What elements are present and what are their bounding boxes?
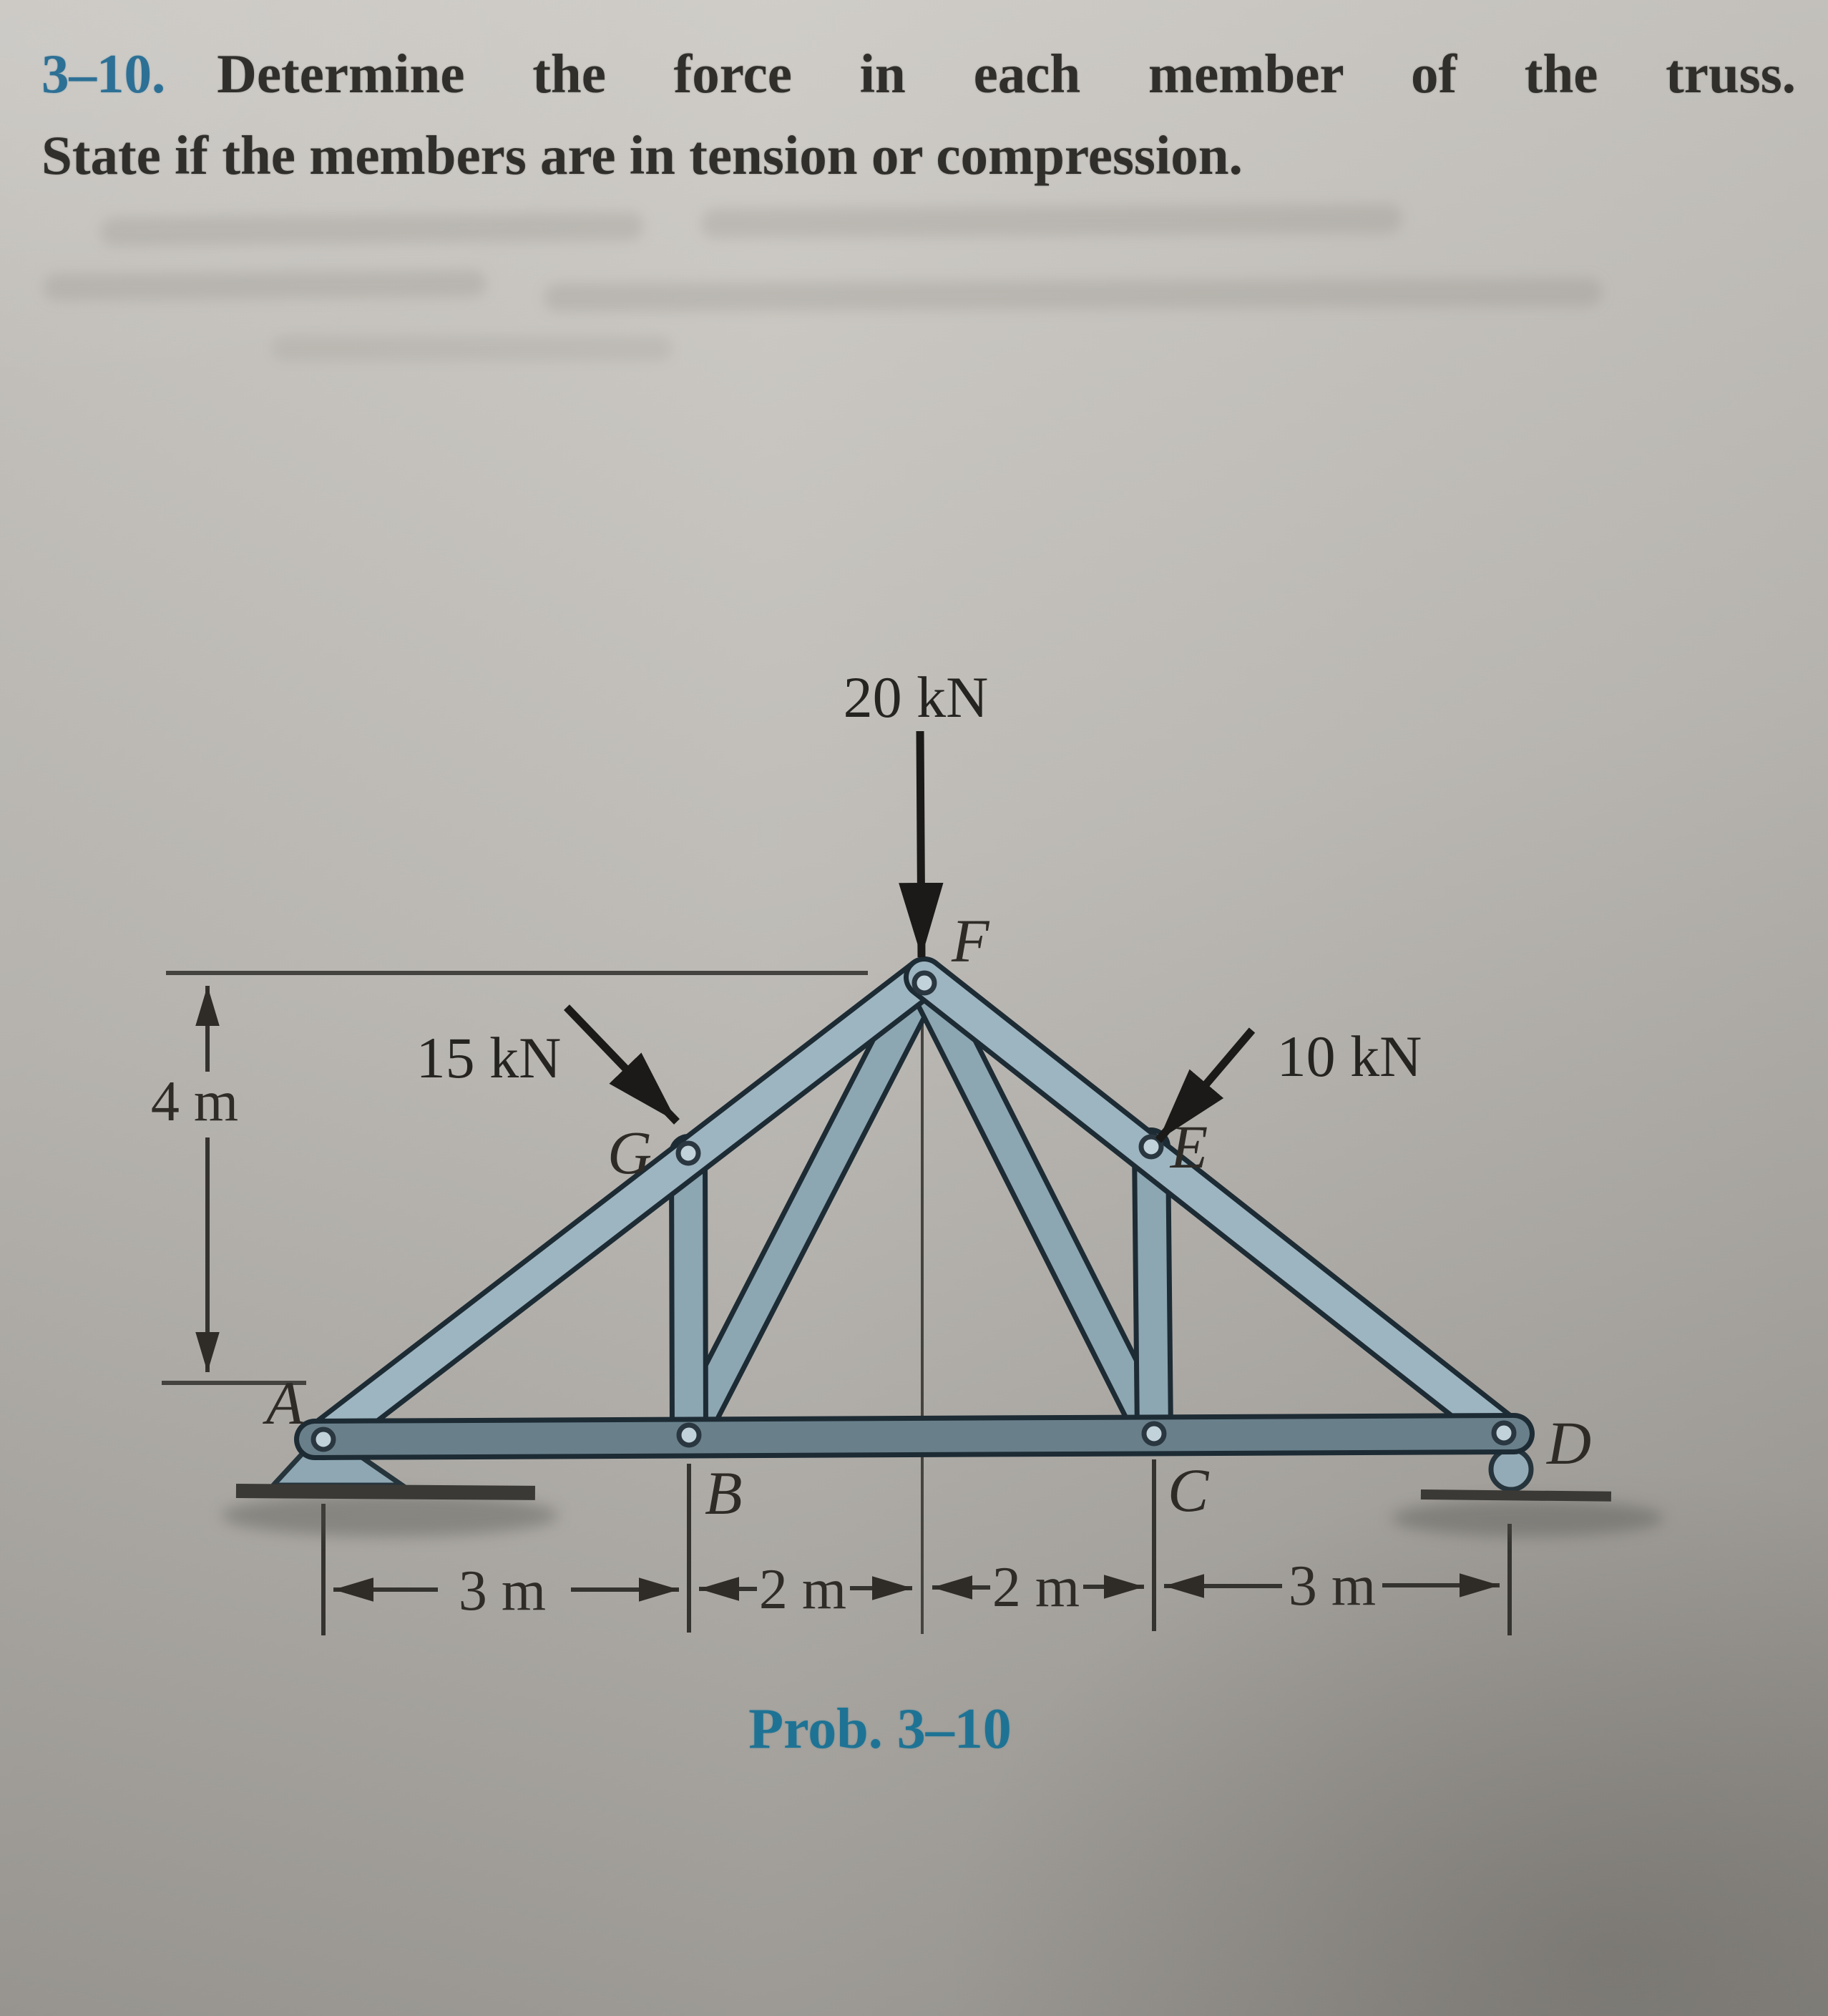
pin-A [313, 1429, 333, 1449]
load-arrows [567, 731, 1252, 1140]
pin-F [914, 973, 934, 993]
joint-label-A: A [263, 1369, 304, 1437]
joint-label-C: C [1168, 1456, 1210, 1525]
pin-G [678, 1143, 698, 1163]
load-arrow-20kN [920, 731, 922, 957]
pin-C [1144, 1424, 1164, 1444]
span-label-0: 3 m [459, 1560, 546, 1623]
roller-support-D [1392, 1449, 1663, 1537]
span-label-2: 2 m [992, 1556, 1080, 1619]
load-label-15kN: 15 kN [416, 1025, 562, 1090]
span-dimensions: 3 m 2 m 2 m 3 m [333, 1555, 1500, 1623]
height-dimension-label: 4 m [151, 1070, 238, 1133]
joint-label-F: F [951, 906, 990, 975]
load-label-20kN: 20 kN [844, 665, 989, 730]
textbook-page: 3–10. Determine the force in each member… [0, 0, 1828, 2016]
load-arrow-15kN [567, 1007, 677, 1122]
load-label-10kN: 10 kN [1277, 1024, 1422, 1089]
span-label-3: 3 m [1289, 1555, 1376, 1618]
joint-label-E: E [1169, 1112, 1208, 1181]
roller-wheel [1491, 1449, 1531, 1489]
joint-label-D: D [1546, 1409, 1591, 1477]
pin-B [679, 1425, 699, 1445]
joint-label-G: G [607, 1118, 652, 1187]
joint-label-B: B [705, 1459, 743, 1527]
pin-D [1494, 1423, 1514, 1443]
span-label-1: 2 m [759, 1558, 846, 1621]
height-dimension: 4 m [151, 986, 238, 1372]
figure-caption: Prob. 3–10 [673, 1697, 1087, 1762]
